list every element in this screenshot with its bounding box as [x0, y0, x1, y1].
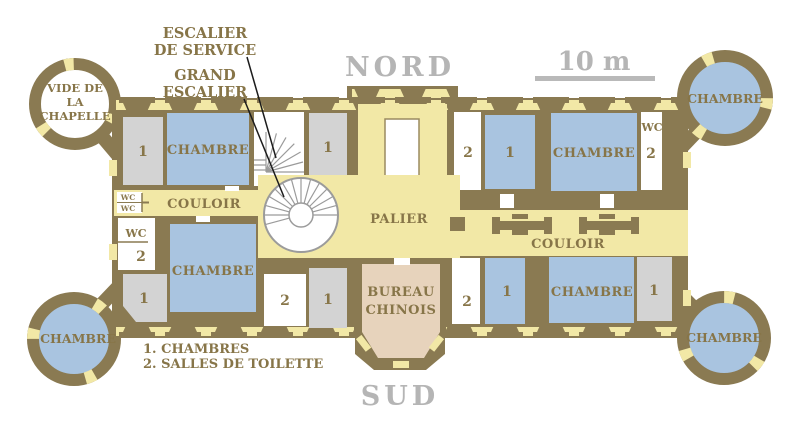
door-vestibule-1	[500, 194, 514, 208]
label-bureau-1: BUREAU	[367, 285, 435, 300]
room-toilette-se	[452, 258, 480, 324]
floor-plan-stage: ESCALIER DE SERVICE GRAND ESCALIER NORD …	[0, 0, 800, 436]
chateau-floor-plan: ESCALIER DE SERVICE GRAND ESCALIER NORD …	[0, 0, 800, 436]
bureau-door	[394, 258, 410, 265]
label-vide-chapelle-1: VIDE DE	[46, 81, 103, 95]
label-wc-ne: WC	[640, 121, 662, 134]
furniture-square	[450, 217, 465, 231]
label-vide-chapelle-2: LA	[66, 95, 84, 109]
label-chambre-tower-br: CHAMBRE	[686, 330, 762, 345]
label-wc-tiny-2: WC	[120, 204, 135, 213]
label-num-sw: 1	[139, 291, 149, 307]
label-num-toilette-ne: 2	[463, 145, 473, 161]
label-num-chambre-ne: 1	[505, 145, 515, 161]
label-num-nw: 1	[138, 144, 148, 160]
label-num-service-se: 1	[649, 283, 659, 299]
grand-staircase	[264, 178, 338, 252]
label-num-toilette-ne2: 2	[646, 146, 656, 162]
label-num-toilette-se: 2	[462, 294, 472, 310]
label-nord: NORD	[345, 52, 455, 83]
label-wc-west: WC	[124, 227, 146, 240]
label-sud: SUD	[361, 381, 439, 412]
label-escalier-service-1: ESCALIER	[163, 25, 248, 42]
label-escalier-service-2: DE SERVICE	[154, 42, 256, 59]
label-num-n-center: 1	[323, 140, 333, 156]
label-num-chambre-se: 1	[502, 284, 512, 300]
label-chambre-ne: CHAMBRE	[553, 146, 635, 161]
label-grand-escalier-1: GRAND	[174, 67, 236, 84]
label-wc-tiny-1: WC	[120, 193, 135, 202]
light-well	[385, 119, 419, 184]
label-num-toilette-sc: 2	[280, 293, 290, 309]
legend-line-1: 1. CHAMBRES	[143, 342, 249, 357]
label-chambre-se: CHAMBRE	[551, 285, 633, 300]
label-palier: PALIER	[370, 212, 428, 227]
label-couloir-west: COULOIR	[167, 197, 241, 212]
label-chambre-nw: CHAMBRE	[167, 143, 249, 158]
legend-line-2: 2. SALLES DE TOILETTE	[143, 357, 323, 372]
label-grand-escalier-2: ESCALIER	[163, 84, 248, 101]
label-chambre-tower-bl: CHAMBRE	[40, 331, 116, 346]
label-vide-chapelle-3: CHAPELLE	[39, 109, 111, 123]
label-chambre-sw: CHAMBRE	[172, 264, 254, 279]
label-num-sc: 1	[323, 292, 333, 308]
door-vestibule-2	[600, 194, 614, 208]
label-couloir-east: COULOIR	[531, 237, 605, 252]
label-num-toilette-w: 2	[136, 249, 146, 265]
label-scale: 10 m	[558, 47, 631, 77]
label-bureau-2: CHINOIS	[366, 303, 437, 318]
label-chambre-tower-tr: CHAMBRE	[687, 91, 763, 106]
